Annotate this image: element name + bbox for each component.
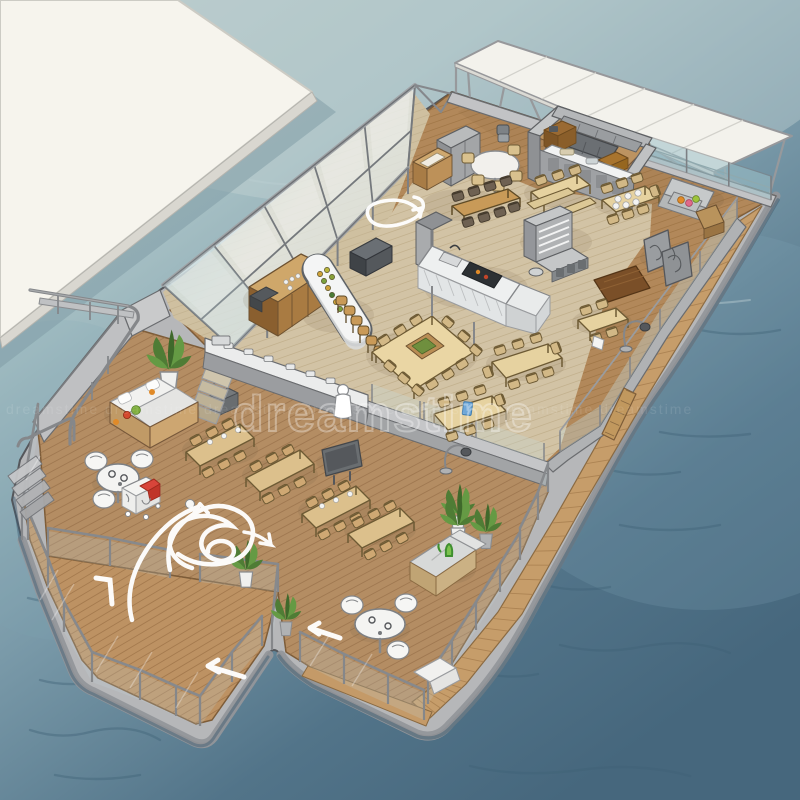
svg-text:dreamstime: dreamstime [233, 386, 534, 442]
